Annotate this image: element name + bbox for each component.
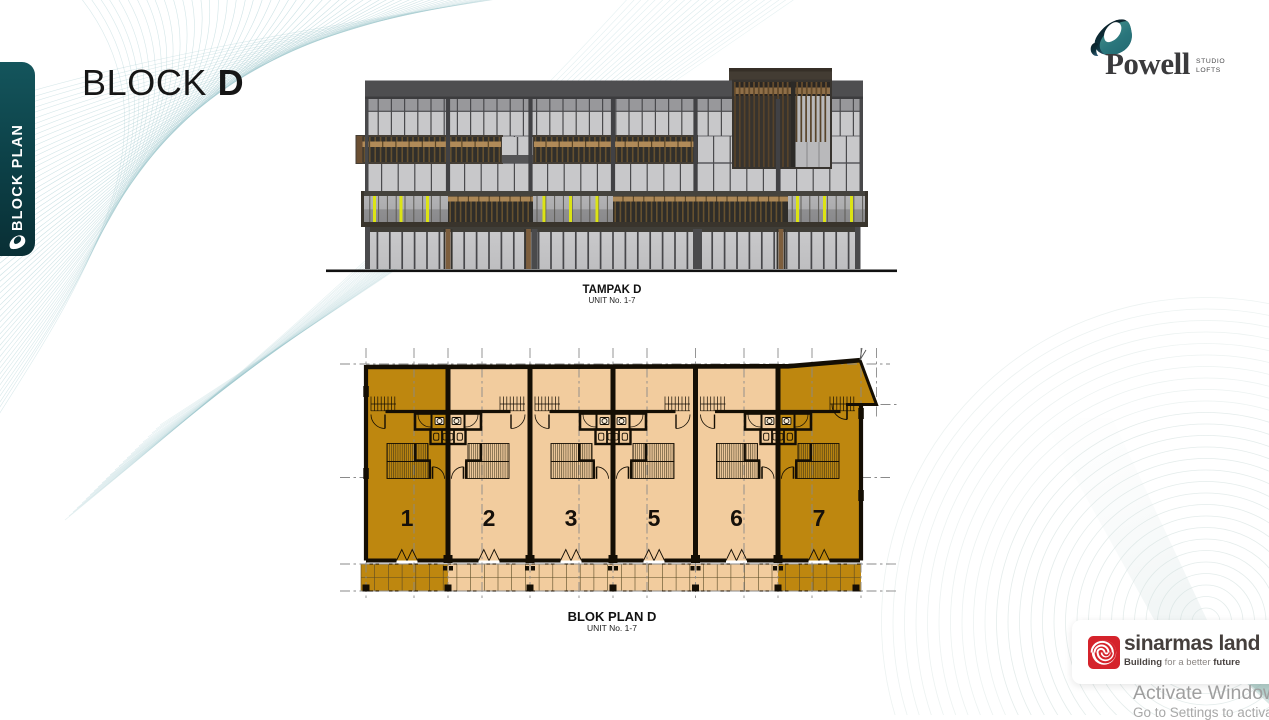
svg-text:6: 6 [730,505,743,531]
svg-text:3: 3 [565,505,578,531]
svg-text:1: 1 [401,505,414,531]
svg-text:2: 2 [483,505,496,531]
svg-text:7: 7 [813,505,826,531]
svg-text:5: 5 [648,505,661,531]
